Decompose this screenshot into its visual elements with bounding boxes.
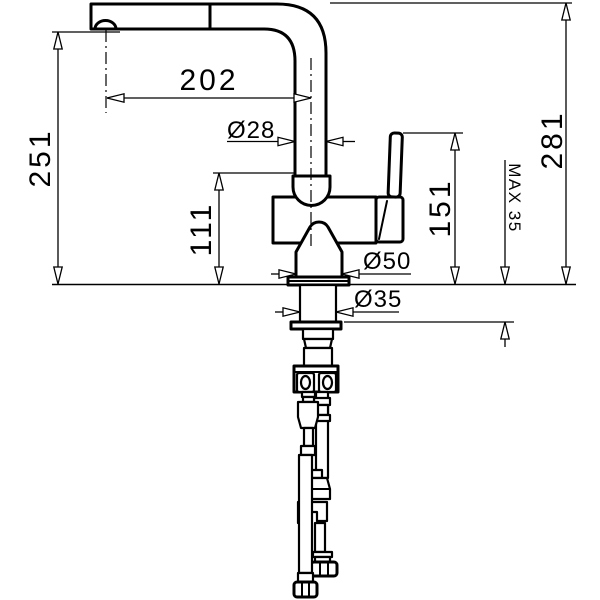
shank-step-1 xyxy=(303,329,333,339)
right-hose xyxy=(315,523,325,552)
dim-max35-label: MAX 35 xyxy=(505,163,524,232)
dim-111-arrow-top xyxy=(215,173,223,190)
right-hose-nut xyxy=(311,562,337,576)
dim-max35-arrow-down xyxy=(501,267,509,284)
dim-281-label: 281 xyxy=(536,110,569,169)
faucet-technical-drawing: 202 251 281 111 151 MAX 35 Ø28 Ø50 Ø35 xyxy=(0,0,600,600)
dim-151-arrow-bottom xyxy=(451,267,459,284)
dim-202-arrow-left xyxy=(107,94,124,102)
left-hex-nut xyxy=(298,402,318,428)
connector-hole-left xyxy=(301,376,310,389)
lever-handle xyxy=(388,133,402,197)
left-neck xyxy=(304,428,313,446)
connector-hole-right xyxy=(323,376,332,389)
dim-dia35-label: Ø35 xyxy=(354,286,402,313)
dim-dia28-arrow-right xyxy=(326,137,343,145)
dim-151-label: 151 xyxy=(424,178,457,237)
dim-dia35-arrow-left xyxy=(283,308,300,316)
aerator-dome xyxy=(95,21,116,30)
dim-dia35-arrow-right xyxy=(336,308,353,316)
left-hose-nut xyxy=(294,582,317,597)
dim-251-label: 251 xyxy=(24,128,57,187)
dim-max35-arrow-up xyxy=(501,322,509,339)
faucet-outline xyxy=(91,4,403,285)
left-collar xyxy=(301,446,315,455)
dim-dia50-label: Ø50 xyxy=(363,248,411,275)
left-hose xyxy=(299,455,312,573)
dim-251-arrow-top xyxy=(54,32,62,49)
dim-111-arrow-bottom xyxy=(215,267,223,284)
shank-step-2 xyxy=(304,339,332,348)
dim-281-arrow-bottom xyxy=(562,267,570,284)
dim-151-arrow-top xyxy=(451,133,459,150)
dim-111-label: 111 xyxy=(185,202,218,257)
dim-281-arrow-top xyxy=(562,3,570,20)
dim-dia28-label: Ø28 xyxy=(227,117,275,144)
dim-202-label: 202 xyxy=(179,64,238,97)
dim-dia28-arrow-left xyxy=(278,137,295,145)
dim-251-arrow-bottom xyxy=(54,267,62,284)
under-counter-assembly xyxy=(291,285,341,597)
mounting-shank xyxy=(300,285,336,322)
drawing-svg: 202 251 281 111 151 MAX 35 Ø28 Ø50 Ø35 xyxy=(0,0,600,600)
